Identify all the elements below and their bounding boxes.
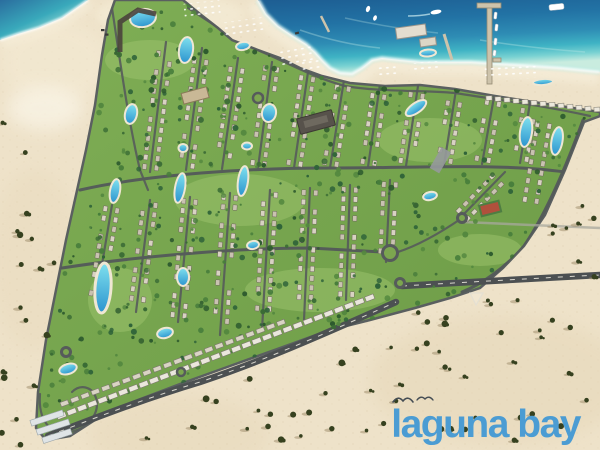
screenshot-root: laguna bay <box>0 0 600 450</box>
site-plan-image <box>0 0 600 450</box>
logo-text: laguna bay <box>391 403 580 446</box>
logo: laguna bay <box>391 405 580 444</box>
flying-birds-icon <box>391 391 437 407</box>
